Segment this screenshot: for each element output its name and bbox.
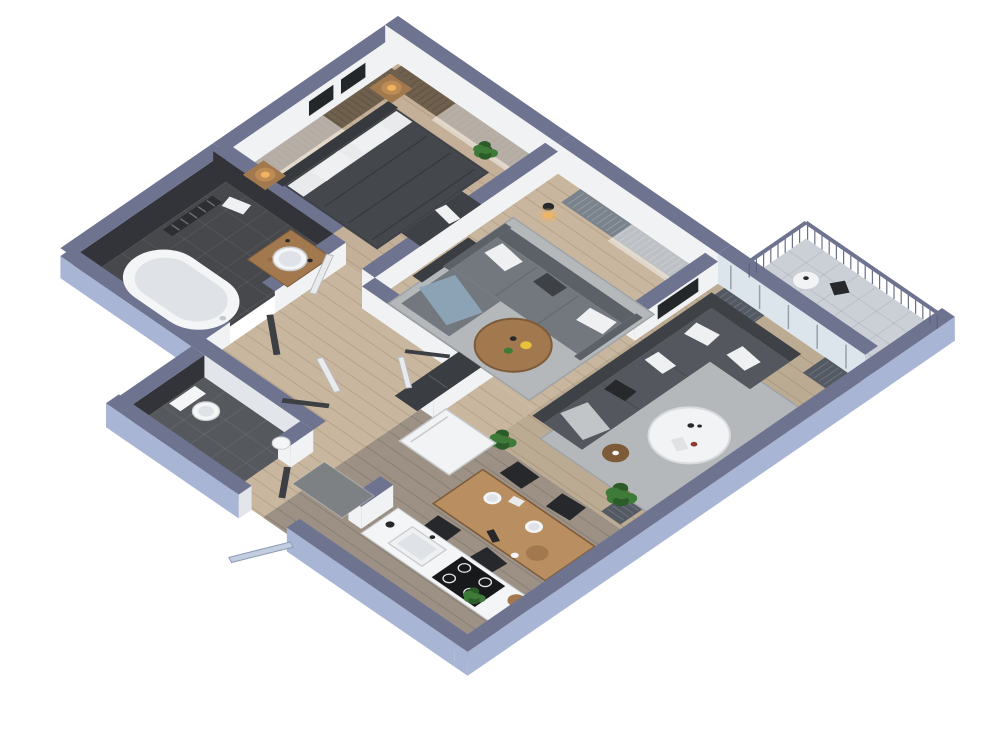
plant-leaves [481,147,491,154]
serving-board [526,545,549,561]
entry-door-open [229,542,293,563]
toilet-seat [198,406,214,417]
table-decor-red [691,442,698,447]
sink-faucet [430,535,436,539]
bistro-cup [803,276,809,280]
side-table-cup [612,451,619,456]
cup [511,553,519,558]
plant-leaves [615,490,628,499]
basin-faucet [307,259,313,263]
plate-inner [487,494,498,502]
table-decor [697,424,702,427]
tub-faucet [219,316,226,321]
floorplan-scene [0,0,1000,750]
basin-inner [279,251,302,267]
nightstand-lamp [261,172,270,178]
toiletry [267,258,273,262]
table-flowers [520,341,531,349]
plant-leaves [470,593,480,600]
bathtub-inner [167,280,228,322]
wc-basin [272,437,290,449]
table-decor [687,423,694,428]
table-greenery [504,348,513,354]
bistro-table [792,271,819,290]
floorplan-3d-render [0,0,1000,750]
toiletry [285,239,290,242]
kettle [386,521,395,527]
round-table [649,407,730,463]
nightstand-lamp [387,85,396,91]
plate-inner [528,523,539,531]
plant-leaves [498,436,509,444]
coffee-table [475,319,552,372]
table-vase [510,336,517,341]
floor-lamp-glow [544,212,553,218]
